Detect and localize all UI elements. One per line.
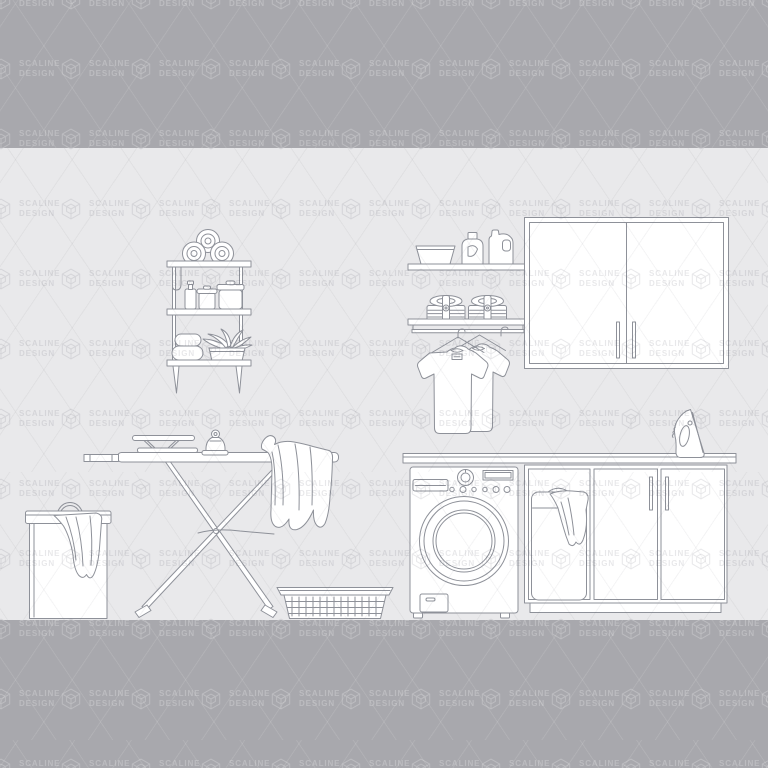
cabinet-handle [633,322,636,358]
cabinet-door [661,469,725,600]
stock-image-canvas: SCALINEDESIGNSCALINEDESIGNSCALINEDESIGNS… [0,0,768,768]
laundry-hamper [26,503,112,619]
washing-machine [410,467,518,618]
lower-wall-shelf [408,296,528,333]
board-leg [166,462,274,610]
iron-rest [84,455,119,462]
washer-button [450,487,454,491]
washer-button [493,487,499,493]
base-cabinet [525,465,728,613]
wall-cabinet [525,218,729,369]
washer-button [504,487,510,493]
hanging-rail [412,330,524,333]
board-leg [142,462,285,610]
sleeve-board [133,436,198,453]
laundry-room-illustration [0,0,768,768]
folded-laundry-bundle [469,296,507,321]
upper-wall-shelf [408,230,528,270]
cabinet-handle [617,322,620,358]
folded-laundry-bundle [427,296,465,321]
cabinet-handle [666,477,669,510]
service-hatch [420,594,448,612]
upright-steam-iron [672,410,704,458]
washer-button [483,487,487,491]
cabinet-laundry-bag [532,488,589,600]
vintage-iron [202,430,228,455]
washer-button [460,487,466,493]
wall-shelf-unit [167,230,252,394]
washer-button [472,487,476,491]
laundry-basket [277,588,393,619]
cabinet-handle [650,477,653,510]
cabinet-door [594,469,658,600]
draped-garment [261,436,332,530]
t-shirts-on-hangers [418,327,510,434]
